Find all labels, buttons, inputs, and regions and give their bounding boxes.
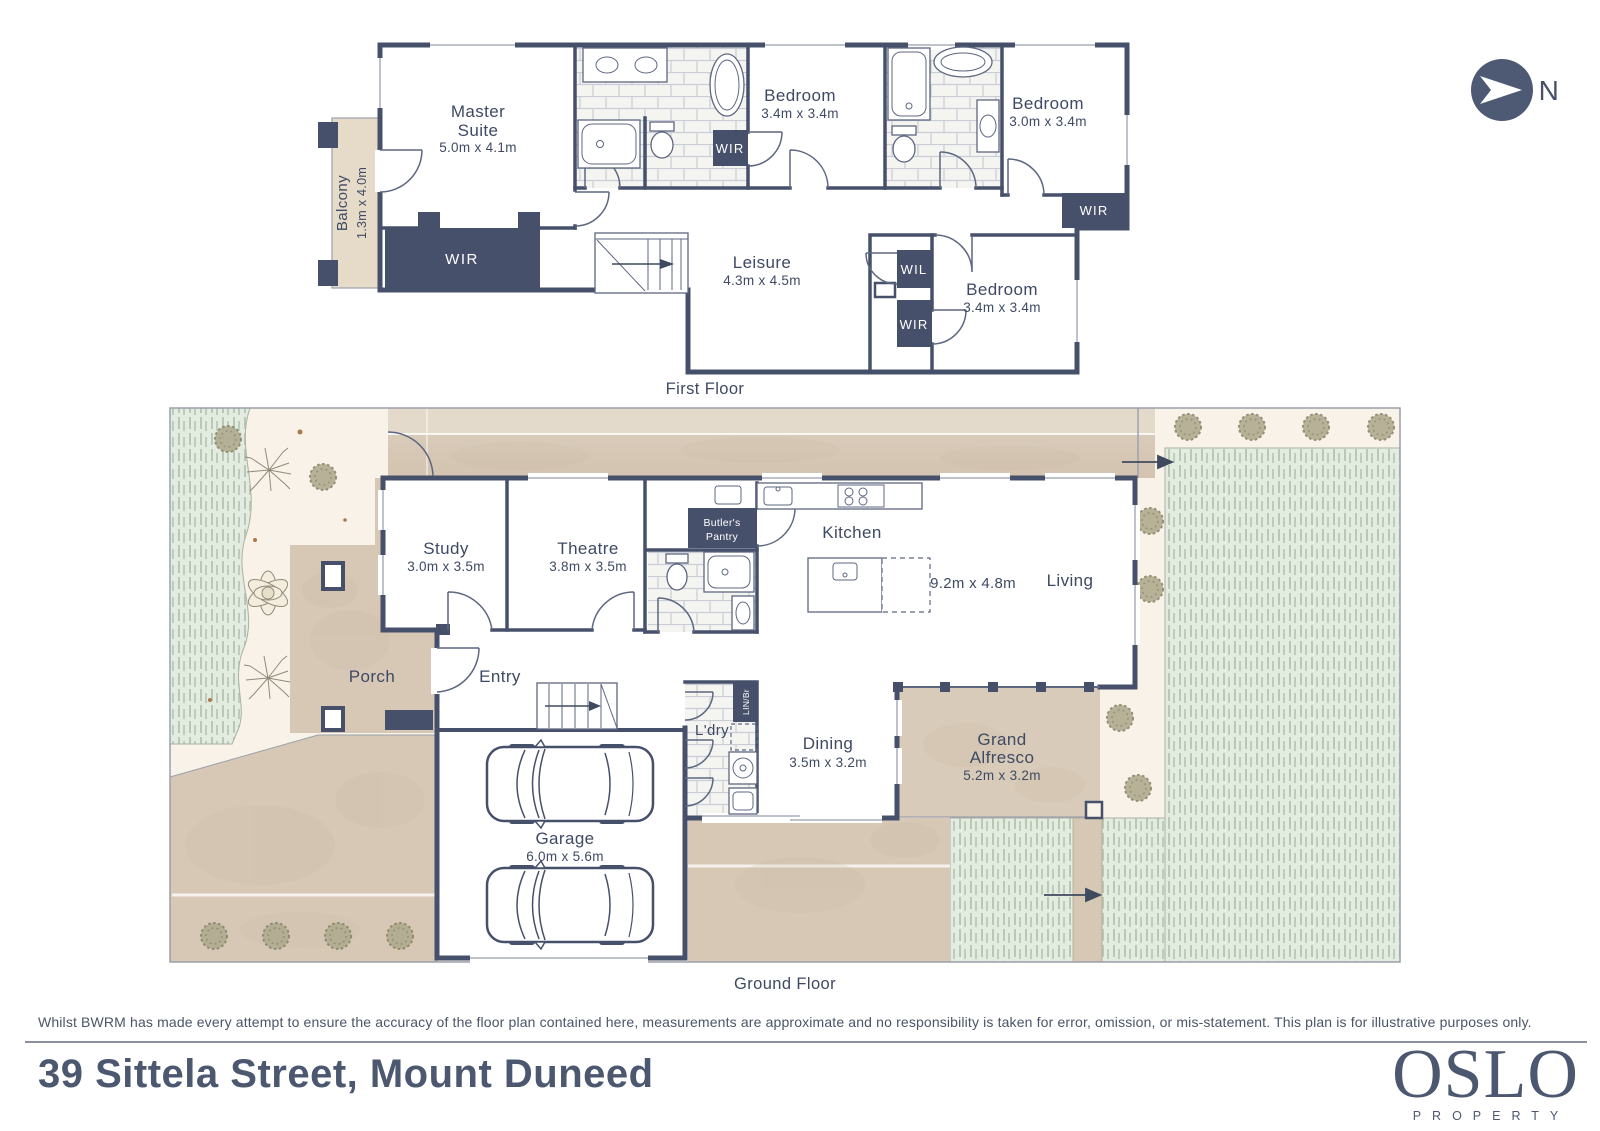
floorplan-drawing: Study 3.0m x 3.5m Theatre 3.8m x 3.5m Bu… [0,0,1600,1005]
balcony-post-bottom [318,260,338,286]
kitchen-island [808,558,930,612]
agency-logo-name: OSLO [1383,1044,1588,1106]
master-label-1: Master [451,102,505,121]
entry-label: Entry [479,667,521,686]
ground-floor-plan: Study 3.0m x 3.5m Theatre 3.8m x 3.5m Bu… [170,408,1400,993]
property-address: 39 Sittela Street, Mount Duneed [38,1052,654,1097]
wir-post-1 [418,212,440,228]
porch-wall-block [385,710,433,730]
wir-ensuite-label: WIR [716,141,745,156]
stairs-ground [537,683,617,729]
ground-floor-caption: Ground Floor [734,975,836,993]
theatre-label: Theatre [557,539,618,558]
garage-label: Garage [535,829,594,848]
disclaimer-text: Whilst BWRM has made every attempt to en… [38,1014,1583,1030]
garage-dims: 6.0m x 5.6m [526,849,604,864]
alfresco-label-2: Alfresco [970,748,1035,767]
leisure-dims: 4.3m x 4.5m [723,273,801,288]
study-dims: 3.0m x 3.5m [407,559,485,574]
living-label: Living [1047,571,1094,590]
wir-bed3-label: WIR [1080,203,1109,218]
butlers-pantry-label-2: Pantry [706,531,739,543]
bed4-label: Bedroom [966,280,1038,299]
porch-label: Porch [349,667,395,686]
study-label: Study [423,539,469,558]
agency-logo-tagline: PROPERTY [1383,1109,1588,1123]
grass-bottom [950,818,1165,962]
wil-label: WIL [901,262,928,277]
open-plan-dims: 9.2m x 4.8m [930,575,1016,592]
car-1 [487,740,653,828]
wir-bed4-label: WIR [900,317,929,332]
bed2-label: Bedroom [764,86,836,105]
floorplan-page: Study 3.0m x 3.5m Theatre 3.8m x 3.5m Bu… [0,0,1600,1131]
bed2-dims: 3.4m x 3.4m [761,106,839,121]
driveway-upper-band [388,408,1155,434]
agency-logo: OSLO PROPERTY [1383,1044,1588,1123]
butlers-pantry-label-1: Butler's [703,517,740,529]
porch-post-top [323,563,343,589]
bed3-label: Bedroom [1012,94,1084,113]
alfresco-corner-post [1086,802,1102,818]
first-floor-caption: First Floor [666,380,745,398]
dining-label: Dining [803,734,854,753]
stairs-first [595,233,688,293]
wir-master-label: WIR [445,251,479,268]
bed4-niche [875,283,895,297]
grass-left-strip [170,408,251,744]
theatre-dims: 3.8m x 3.5m [549,559,627,574]
balcony-label: Balcony [334,175,351,231]
kitchen-bench [757,483,922,509]
master-label-2: Suite [458,121,499,140]
porch-post-bottom [323,708,343,730]
wir-post-2 [518,212,540,228]
bed3-dims: 3.0m x 3.4m [1009,114,1087,129]
north-label: N [1539,75,1560,106]
alfresco-dims: 5.2m x 3.2m [963,768,1041,783]
north-compass: N [1471,59,1559,121]
kitchen-label: Kitchen [822,523,882,542]
first-floor-plan: Master Suite 5.0m x 4.1m Balcony 1.3m x … [318,40,1132,398]
laundry-label: L'dry [695,722,729,739]
footer-divider [25,1041,1587,1043]
garage-door [470,953,648,963]
balcony-dims: 1.3m x 4.0m [355,167,369,239]
grass-right [1165,448,1400,962]
dining-dims: 3.5m x 3.2m [789,755,867,770]
alfresco-label-1: Grand [977,730,1026,749]
car-2 [487,861,653,949]
linen-broom-label: LIN/Br [741,689,751,715]
leisure-label: Leisure [733,253,792,272]
master-dims: 5.0m x 4.1m [439,140,517,155]
balcony-post-top [318,122,338,148]
bed4-dims: 3.4m x 3.4m [963,300,1041,315]
